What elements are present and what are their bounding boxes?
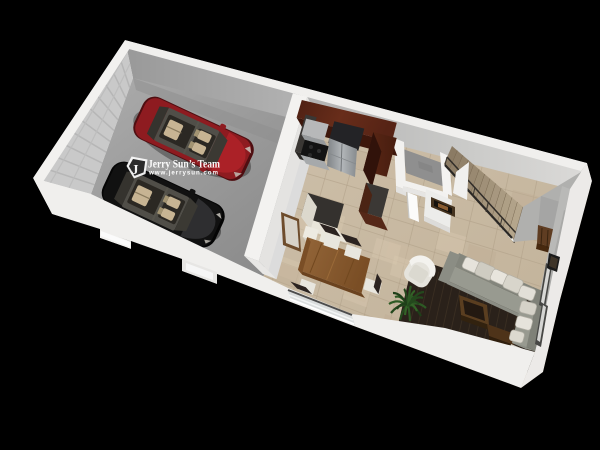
svg-text:www.jerrysun.com: www.jerrysun.com xyxy=(148,170,219,177)
svg-text:Jerry Sun’s Team: Jerry Sun’s Team xyxy=(148,157,220,171)
svg-text:J: J xyxy=(132,163,139,178)
